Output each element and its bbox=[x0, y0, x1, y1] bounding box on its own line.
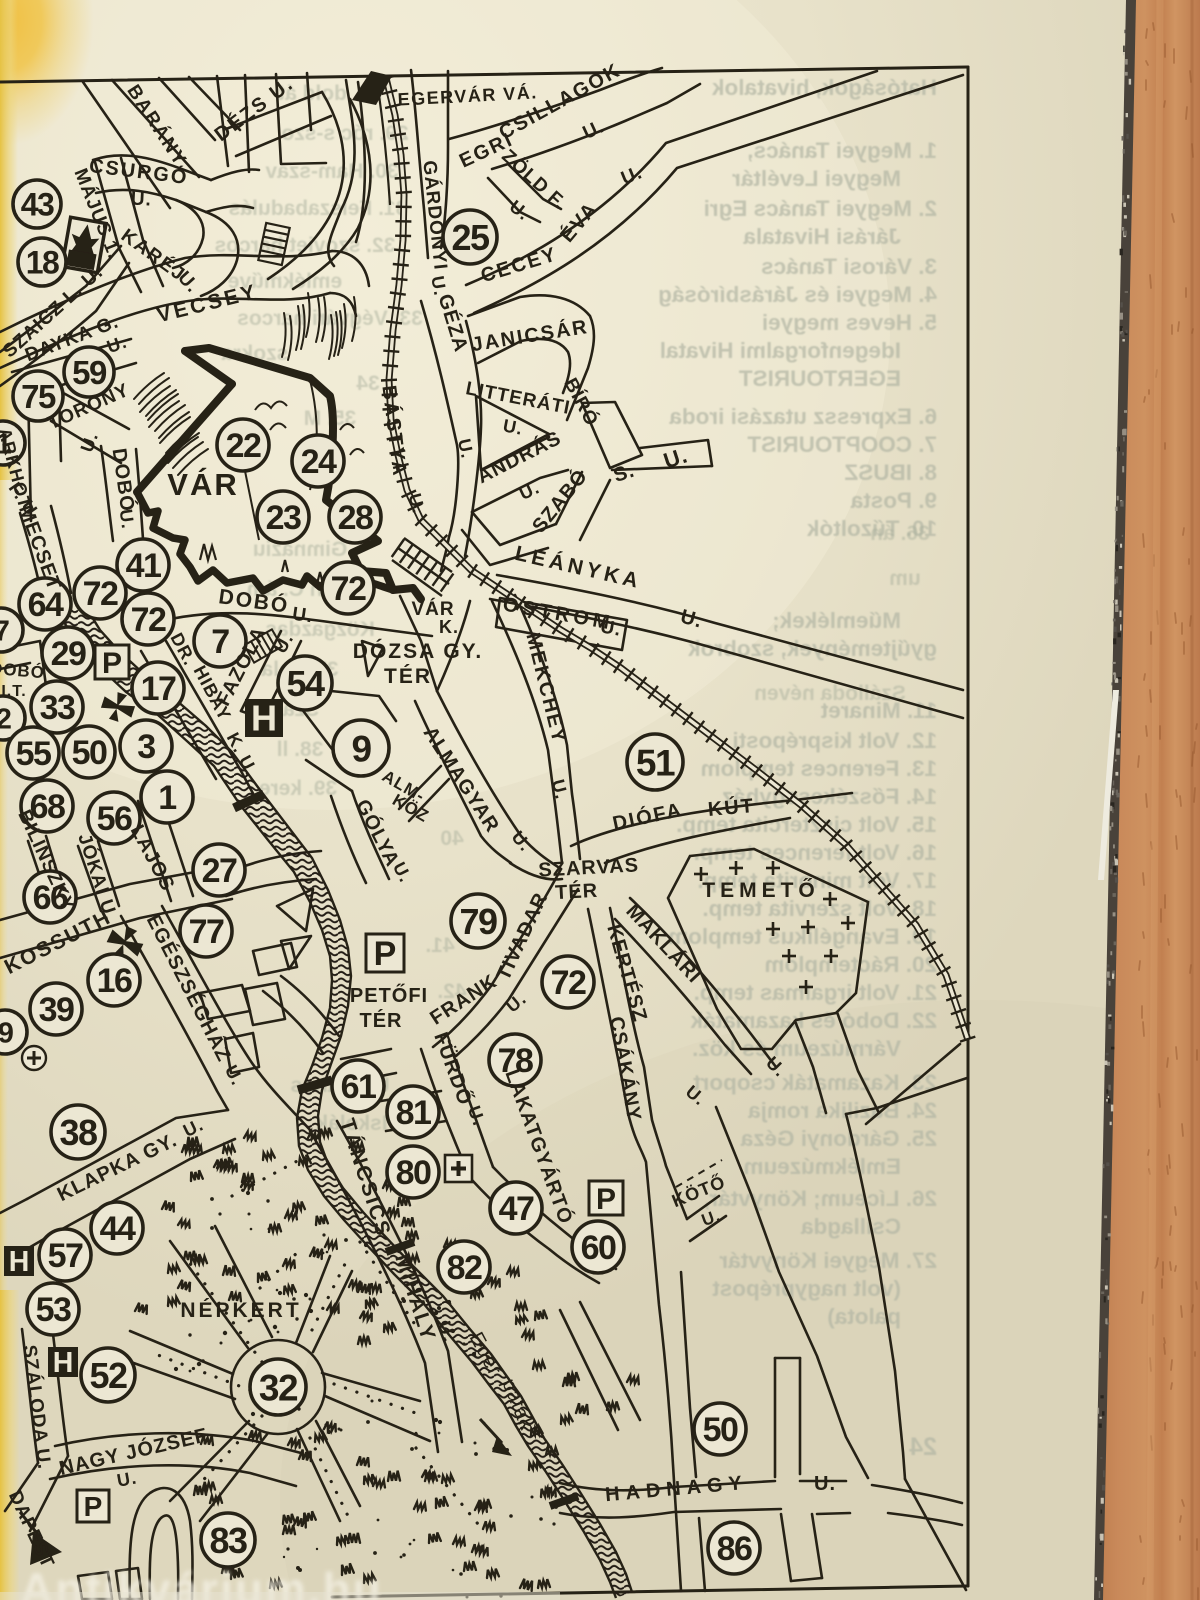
svg-text:33: 33 bbox=[40, 689, 75, 727]
svg-text:EGERTOURIST: EGERTOURIST bbox=[739, 366, 901, 391]
svg-text:U.: U. bbox=[116, 508, 139, 531]
svg-text:50: 50 bbox=[72, 734, 107, 772]
svg-text:32: 32 bbox=[259, 1367, 298, 1408]
svg-text:palota): palota) bbox=[827, 1304, 901, 1329]
svg-text:8. IBUSZ: 8. IBUSZ bbox=[844, 460, 937, 485]
svg-text:82: 82 bbox=[447, 1249, 482, 1287]
svg-text:P: P bbox=[102, 647, 122, 680]
svg-text:TÉR: TÉR bbox=[555, 879, 599, 904]
svg-text:86: 86 bbox=[717, 1530, 752, 1568]
svg-text:U.: U. bbox=[599, 616, 623, 640]
svg-text:51: 51 bbox=[636, 742, 675, 783]
svg-text:54: 54 bbox=[286, 663, 325, 704]
svg-text:41.: 41. bbox=[425, 934, 454, 957]
svg-text:9: 9 bbox=[0, 1017, 14, 1049]
svg-text:27: 27 bbox=[202, 852, 237, 890]
svg-text:17: 17 bbox=[141, 670, 176, 708]
svg-text:39: 39 bbox=[39, 991, 74, 1029]
svg-text:32. szoviet harcos: 32. szoviet harcos bbox=[215, 234, 396, 257]
svg-text:6. Expressz utazási iroda: 6. Expressz utazási iroda bbox=[669, 404, 937, 429]
svg-text:23: 23 bbox=[266, 499, 301, 537]
svg-text:50: 50 bbox=[703, 1411, 738, 1449]
svg-text:24. Bazilika romja: 24. Bazilika romja bbox=[748, 1098, 937, 1123]
svg-text:83: 83 bbox=[209, 1520, 247, 1561]
svg-text:24: 24 bbox=[301, 443, 337, 481]
svg-text:U.: U. bbox=[115, 1468, 138, 1491]
svg-text:55: 55 bbox=[16, 735, 51, 773]
svg-text:TEMETŐ: TEMETŐ bbox=[702, 879, 820, 902]
svg-text:44: 44 bbox=[100, 1210, 136, 1248]
svg-text:U.: U. bbox=[454, 437, 478, 461]
svg-text:79: 79 bbox=[459, 901, 497, 942]
svg-text:4. Megyei és Járásbíróság: 4. Megyei és Járásbíróság bbox=[658, 282, 937, 307]
svg-text:P: P bbox=[374, 935, 397, 973]
svg-text:K.: K. bbox=[439, 617, 459, 637]
svg-text:Csillagda: Csillagda bbox=[800, 1214, 901, 1239]
svg-text:29. róc s-szo: 29. róc s-szo bbox=[281, 122, 408, 145]
svg-text:12. Volt kispréposti: 12. Volt kispréposti bbox=[732, 728, 937, 753]
svg-text:47: 47 bbox=[499, 1190, 534, 1228]
svg-text:I.T.: I.T. bbox=[1, 683, 26, 700]
svg-text:VÁR: VÁR bbox=[167, 467, 238, 502]
svg-text:72: 72 bbox=[131, 601, 166, 639]
svg-text:43: 43 bbox=[21, 187, 54, 223]
svg-text:27. Megyei Könyvtár: 27. Megyei Könyvtár bbox=[719, 1248, 937, 1273]
svg-text:Hatóságok, hivatalok: Hatóságok, hivatalok bbox=[711, 75, 937, 100]
svg-text:3. Városi Tanács: 3. Városi Tanács bbox=[761, 254, 937, 279]
svg-text:DÓZSA GY.: DÓZSA GY. bbox=[353, 639, 483, 663]
svg-text:(volt nagyprépost: (volt nagyprépost bbox=[712, 1276, 901, 1301]
svg-text:U.: U. bbox=[130, 188, 152, 210]
svg-text:H: H bbox=[251, 698, 277, 739]
svg-text:59: 59 bbox=[72, 354, 107, 391]
svg-text:NÉPKERT: NÉPKERT bbox=[180, 1299, 301, 1322]
svg-text:9: 9 bbox=[351, 728, 371, 769]
svg-text:3: 3 bbox=[137, 728, 155, 766]
svg-text:DOBÓ: DOBÓ bbox=[0, 659, 46, 683]
svg-text:61: 61 bbox=[341, 1068, 376, 1106]
svg-text:P: P bbox=[84, 1491, 103, 1522]
svg-text:36. án: 36. án bbox=[870, 522, 930, 545]
svg-text:21. Volt irgalmas temp.: 21. Volt irgalmas temp. bbox=[694, 980, 937, 1005]
svg-text:TÉR: TÉR bbox=[384, 665, 432, 688]
svg-text:80: 80 bbox=[396, 1154, 431, 1192]
svg-text:9. Posta: 9. Posta bbox=[850, 488, 937, 513]
svg-text:Megyei Levéltár: Megyei Levéltár bbox=[732, 166, 901, 191]
svg-text:Emlékmúzeum: Emlékmúzeum bbox=[743, 1154, 901, 1179]
svg-text:72: 72 bbox=[551, 964, 586, 1002]
svg-text:41: 41 bbox=[126, 547, 161, 585]
svg-text:28: 28 bbox=[338, 499, 373, 537]
svg-text:57: 57 bbox=[48, 1237, 83, 1275]
svg-text:2. Megyei Tanács Egri: 2. Megyei Tanács Egri bbox=[704, 196, 937, 221]
svg-text:1: 1 bbox=[158, 779, 176, 817]
svg-text:81: 81 bbox=[396, 1094, 431, 1132]
svg-text:5. Heves megyei: 5. Heves megyei bbox=[762, 310, 937, 335]
svg-text:Gimnáziu: Gimnáziu bbox=[253, 538, 348, 561]
svg-text:13. Ferences templom: 13. Ferences templom bbox=[701, 756, 937, 781]
svg-text:31. Felszabadulás: 31. Felszabadulás bbox=[229, 197, 408, 220]
svg-text:1. Megyei Tanács,: 1. Megyei Tanács, bbox=[747, 138, 937, 163]
svg-text:H: H bbox=[9, 1246, 30, 1278]
svg-text:77: 77 bbox=[189, 913, 224, 951]
svg-text:29: 29 bbox=[51, 635, 86, 673]
svg-text:22. Dobó és kazamaták: 22. Dobó és kazamaták bbox=[690, 1008, 937, 1033]
svg-text:PETŐFI: PETŐFI bbox=[350, 984, 428, 1007]
svg-text:Szálloda néven: Szálloda néven bbox=[754, 682, 906, 705]
svg-text:60: 60 bbox=[581, 1229, 616, 1267]
svg-text:Idegenforgalmi Hivatal: Idegenforgalmi Hivatal bbox=[660, 338, 901, 363]
svg-text:52: 52 bbox=[89, 1355, 127, 1396]
svg-text:38: 38 bbox=[59, 1112, 97, 1153]
svg-text:P: P bbox=[596, 1183, 616, 1216]
svg-text:7: 7 bbox=[211, 623, 229, 661]
svg-text:39. kere: 39. kere bbox=[259, 777, 337, 800]
svg-text:TÉR: TÉR bbox=[360, 1009, 403, 1032]
svg-text:16: 16 bbox=[97, 962, 132, 1000]
svg-text:7: 7 bbox=[0, 615, 9, 647]
svg-text:75: 75 bbox=[21, 378, 56, 415]
svg-text:U.: U. bbox=[501, 415, 524, 438]
svg-text:7. COOPTOURIST: 7. COOPTOURIST bbox=[747, 432, 937, 457]
svg-text:Vármúzeum és köz.: Vármúzeum és köz. bbox=[692, 1036, 901, 1061]
svg-text:22: 22 bbox=[226, 427, 261, 465]
svg-text:26. Líceum; Könyvtár,: 26. Líceum; Könyvtár, bbox=[704, 1186, 937, 1211]
svg-text:um: um bbox=[889, 567, 921, 590]
svg-text:U.: U. bbox=[291, 604, 315, 628]
svg-text:Járási Hivatala: Járási Hivatala bbox=[743, 224, 901, 249]
svg-text:34: 34 bbox=[356, 372, 380, 395]
svg-text:25. Gárdonyi Géza: 25. Gárdonyi Géza bbox=[740, 1126, 937, 1151]
svg-text:24: 24 bbox=[909, 1433, 937, 1461]
svg-text:U.: U. bbox=[814, 1473, 836, 1495]
svg-text:53: 53 bbox=[36, 1291, 71, 1329]
svg-text:18: 18 bbox=[26, 245, 59, 281]
svg-text:38. ll: 38. ll bbox=[277, 738, 324, 761]
svg-text:40: 40 bbox=[440, 827, 463, 850]
svg-text:72: 72 bbox=[331, 570, 366, 608]
svg-text:2: 2 bbox=[0, 703, 11, 735]
svg-text:H: H bbox=[53, 1347, 74, 1379]
svg-text:Műemlékek;: Műemlékek; bbox=[772, 608, 901, 633]
svg-text:25: 25 bbox=[451, 217, 490, 258]
svg-text:72: 72 bbox=[83, 575, 118, 613]
